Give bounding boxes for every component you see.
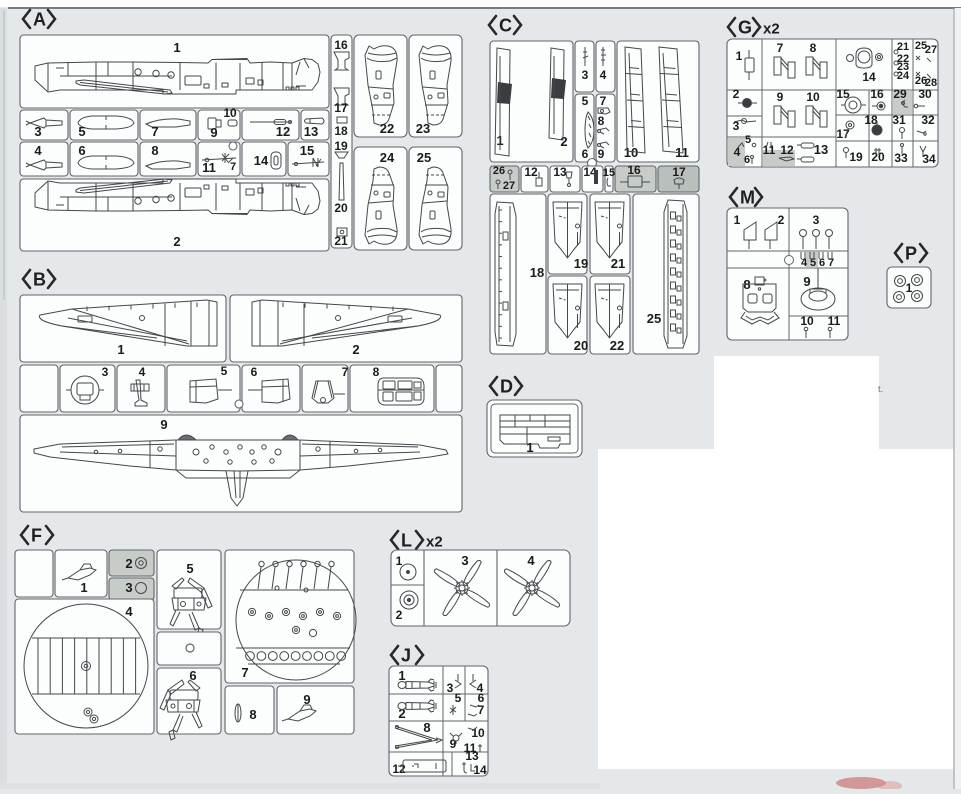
svg-text:30: 30 — [918, 87, 932, 101]
svg-text:25: 25 — [417, 150, 431, 165]
svg-text:21: 21 — [897, 41, 909, 53]
svg-text:8: 8 — [423, 720, 430, 735]
svg-text:4: 4 — [600, 68, 607, 82]
svg-text:B: B — [33, 270, 46, 290]
svg-text:27: 27 — [925, 44, 937, 56]
svg-text:C: C — [499, 16, 512, 36]
svg-text:11: 11 — [828, 314, 841, 328]
svg-text:1: 1 — [736, 49, 743, 63]
svg-text:34: 34 — [922, 152, 936, 166]
svg-text:4: 4 — [34, 143, 42, 158]
svg-text:2: 2 — [398, 706, 405, 721]
svg-text:1: 1 — [906, 281, 913, 295]
svg-text:4: 4 — [139, 365, 146, 379]
svg-text:2: 2 — [352, 342, 359, 357]
svg-text:29: 29 — [893, 87, 907, 101]
svg-text:11: 11 — [763, 143, 776, 157]
svg-text:13: 13 — [553, 165, 567, 179]
svg-text:3: 3 — [125, 580, 132, 595]
svg-text:7: 7 — [777, 41, 784, 55]
svg-text:14: 14 — [862, 70, 876, 84]
svg-text:14: 14 — [473, 763, 487, 777]
svg-text:4: 4 — [527, 553, 535, 568]
svg-text:3: 3 — [461, 553, 468, 568]
svg-text:12: 12 — [392, 762, 406, 776]
svg-text:7: 7 — [600, 94, 607, 108]
svg-text:6: 6 — [78, 143, 85, 158]
svg-text:8: 8 — [249, 707, 256, 722]
svg-text:13: 13 — [814, 142, 828, 157]
svg-text:9: 9 — [598, 147, 605, 161]
svg-text:1: 1 — [398, 668, 405, 683]
svg-text:6: 6 — [582, 147, 589, 161]
svg-text:21: 21 — [611, 256, 625, 271]
svg-text:21: 21 — [334, 234, 348, 248]
svg-text:26: 26 — [493, 165, 505, 177]
svg-text:32: 32 — [921, 113, 935, 127]
svg-text:2: 2 — [733, 87, 740, 101]
svg-text:3: 3 — [34, 124, 41, 139]
svg-text:A: A — [33, 10, 46, 30]
svg-text:9: 9 — [803, 274, 810, 289]
svg-text:18: 18 — [334, 124, 348, 138]
svg-text:11: 11 — [202, 160, 216, 175]
svg-text:17: 17 — [334, 101, 348, 115]
svg-text:20: 20 — [871, 150, 885, 164]
svg-text:8: 8 — [598, 114, 605, 128]
svg-text:9: 9 — [160, 417, 167, 432]
svg-text:15: 15 — [603, 167, 615, 179]
svg-text:2: 2 — [125, 556, 132, 571]
svg-text:1: 1 — [526, 440, 533, 455]
svg-text:33: 33 — [894, 151, 908, 165]
svg-text:5: 5 — [221, 364, 228, 378]
svg-text:19: 19 — [334, 139, 348, 153]
svg-text:5: 5 — [582, 94, 589, 108]
svg-text:16: 16 — [870, 87, 884, 101]
svg-text:22: 22 — [610, 338, 624, 353]
svg-text:5: 5 — [78, 124, 85, 139]
svg-text:7: 7 — [478, 703, 485, 717]
svg-text:9: 9 — [210, 125, 217, 140]
svg-text:17: 17 — [672, 165, 686, 179]
svg-text:1: 1 — [117, 342, 124, 357]
svg-text:P: P — [905, 244, 917, 264]
svg-text:3: 3 — [447, 681, 454, 695]
svg-text:1: 1 — [173, 40, 180, 55]
svg-text:5: 5 — [455, 691, 462, 705]
svg-text:F: F — [31, 526, 42, 546]
svg-text:10: 10 — [223, 106, 237, 120]
svg-text:22: 22 — [380, 121, 394, 136]
svg-text:7: 7 — [151, 124, 158, 139]
svg-text:23: 23 — [416, 121, 430, 136]
svg-text:3: 3 — [813, 213, 820, 227]
svg-text:x2: x2 — [763, 21, 780, 38]
svg-text:1: 1 — [734, 213, 741, 227]
svg-text:7: 7 — [230, 161, 236, 173]
svg-text:8: 8 — [810, 41, 817, 55]
svg-text:4: 4 — [734, 145, 741, 159]
svg-text:19: 19 — [849, 150, 863, 164]
svg-text:6: 6 — [251, 365, 258, 379]
svg-text:5: 5 — [745, 134, 751, 146]
svg-text:24: 24 — [380, 150, 395, 165]
svg-text:16: 16 — [627, 163, 641, 177]
svg-text:24: 24 — [897, 70, 910, 82]
svg-text:12: 12 — [780, 143, 794, 157]
svg-text:1: 1 — [396, 554, 403, 568]
svg-text:8: 8 — [373, 365, 380, 379]
svg-text:8: 8 — [151, 143, 158, 158]
svg-text:25: 25 — [647, 311, 661, 326]
svg-text:19: 19 — [574, 256, 588, 271]
svg-text:D: D — [500, 377, 513, 397]
svg-text:13: 13 — [465, 749, 479, 763]
svg-text:3: 3 — [582, 68, 589, 82]
svg-text:M: M — [740, 188, 755, 208]
svg-text:x2: x2 — [426, 534, 443, 551]
svg-text:1: 1 — [80, 580, 87, 595]
svg-text:2: 2 — [560, 134, 567, 149]
svg-text:t.: t. — [878, 384, 883, 394]
svg-text:4: 4 — [125, 604, 133, 619]
svg-text:7: 7 — [342, 365, 349, 379]
svg-text:10: 10 — [800, 314, 814, 328]
svg-text:9: 9 — [777, 90, 784, 104]
svg-text:12: 12 — [524, 165, 538, 179]
svg-text:16: 16 — [334, 38, 348, 52]
svg-text:G: G — [738, 18, 752, 38]
svg-text:2: 2 — [173, 234, 180, 249]
svg-text:7: 7 — [241, 665, 248, 680]
svg-text:15: 15 — [300, 143, 314, 158]
svg-text:10: 10 — [471, 726, 485, 740]
svg-text:12: 12 — [276, 124, 290, 139]
svg-text:20: 20 — [334, 201, 348, 215]
svg-text:3: 3 — [102, 365, 109, 379]
svg-text:2: 2 — [396, 608, 403, 622]
svg-text:6: 6 — [744, 154, 750, 166]
svg-text:L: L — [401, 531, 412, 551]
svg-text:5: 5 — [186, 561, 193, 576]
svg-text:18: 18 — [530, 265, 544, 280]
svg-text:J: J — [401, 646, 411, 666]
svg-text:20: 20 — [574, 338, 588, 353]
svg-text:31: 31 — [892, 113, 906, 127]
svg-text:27: 27 — [503, 180, 515, 192]
svg-text:2: 2 — [778, 213, 785, 227]
svg-text:14: 14 — [254, 153, 269, 168]
svg-text:13: 13 — [304, 124, 318, 139]
svg-text:10: 10 — [806, 90, 820, 104]
